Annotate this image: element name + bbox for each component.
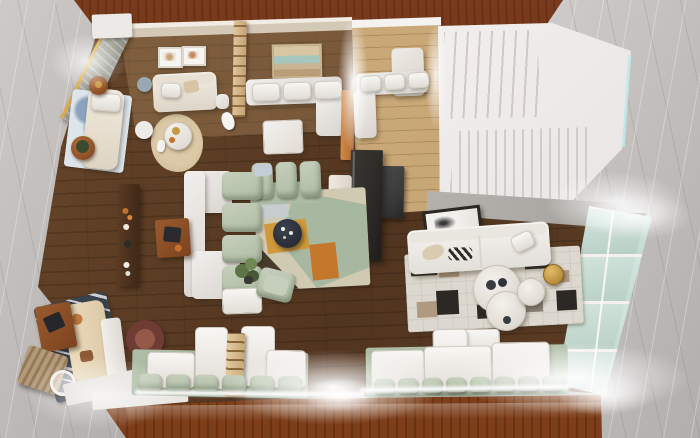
sectional-cushion: [222, 203, 262, 231]
wall-column-cap: [92, 13, 133, 38]
table-decor: [281, 227, 285, 231]
sage-pillow: [446, 377, 466, 392]
bench-cushion: [283, 81, 312, 100]
framed-print: [182, 46, 206, 66]
rug-patch-orange: [309, 242, 339, 281]
pillow-row-left: [138, 370, 308, 393]
table-decor: [283, 236, 286, 239]
console-decor-white: [125, 271, 130, 276]
small-side-table: [216, 94, 229, 109]
decor-gold: [172, 127, 180, 135]
console-decor-white: [123, 224, 129, 230]
framed-print: [158, 47, 183, 68]
armchair-seat: [262, 273, 290, 296]
sectional-cushion: [275, 162, 297, 199]
round-coffee-table-small: [517, 278, 545, 306]
console-decor-dark: [124, 240, 132, 248]
tan-pillow: [183, 79, 200, 94]
rug-patch: [436, 290, 459, 315]
white-pillow: [161, 82, 182, 98]
dark-book: [43, 311, 66, 333]
landscape-artwork: [272, 44, 323, 79]
bench-cushion: [407, 71, 429, 88]
potted-plant: [76, 140, 89, 153]
rug-patch: [417, 301, 438, 318]
slat-ladder-screen: [232, 21, 247, 117]
pillow-row-right: [374, 370, 570, 393]
print-art: [163, 52, 176, 61]
brown-pillow: [79, 350, 94, 363]
wood-side-table: [155, 218, 192, 258]
bench-cushion: [314, 80, 343, 99]
bench-cushion: [252, 83, 281, 102]
accent-pillow-blue: [253, 163, 272, 177]
round-dark-coffee-table: [273, 219, 302, 248]
blue-pouf: [137, 77, 152, 92]
beige-pillow: [421, 242, 446, 262]
decor-gold: [95, 81, 102, 88]
round-white-table: [164, 122, 192, 150]
console-decor-white: [123, 262, 129, 268]
sage-pillow: [222, 375, 246, 391]
sage-pillow: [422, 378, 442, 393]
console-decor-orange: [127, 215, 132, 220]
media-console: [117, 184, 140, 286]
dark-book: [163, 226, 181, 243]
print-art: [187, 51, 199, 59]
plant-pot: [244, 276, 253, 284]
plant-foliage: [245, 258, 257, 270]
brass-stool: [543, 264, 564, 285]
sage-pillow: [518, 376, 538, 391]
sage-pillow: [542, 375, 562, 390]
sage-pillow: [138, 374, 162, 390]
sage-pillow: [470, 377, 490, 392]
sage-pillow: [278, 376, 302, 392]
wood-coffee-table: [34, 301, 77, 353]
table-decor-dark: [486, 280, 496, 290]
sectional-cushion: [299, 161, 321, 198]
sage-pillow: [166, 374, 190, 390]
table-decor-dark: [498, 278, 507, 287]
potted-plant: [235, 258, 261, 284]
hall-bench-vertical: [353, 90, 377, 139]
apartment-render: [0, 0, 700, 438]
bench-cushion: [360, 75, 382, 92]
sage-pillow: [398, 378, 418, 393]
sage-pillow: [194, 374, 218, 390]
dining-cushion-row: [252, 81, 339, 102]
daybed-pillow: [90, 92, 121, 112]
round-side-table: [89, 76, 108, 95]
dining-bench-vertical: [316, 94, 344, 136]
console-decor-orange: [122, 208, 128, 214]
bedroom-loveseat: [152, 71, 218, 112]
sage-pillow: [250, 375, 274, 391]
white-pouf: [135, 121, 153, 139]
wood-reflection: [126, 402, 602, 421]
table-decor: [289, 231, 293, 235]
decor-orange: [174, 244, 181, 251]
sofa-seam: [478, 236, 482, 268]
decor-orange: [169, 137, 175, 143]
table-decor-dark: [503, 316, 511, 324]
bench-cushion: [383, 73, 405, 90]
round-side-table: [71, 136, 95, 160]
sage-pillow: [374, 378, 394, 393]
sage-pillow: [494, 376, 514, 391]
rug-patch: [556, 290, 577, 311]
dining-table: [262, 119, 303, 154]
zebra-pillow: [448, 247, 472, 260]
